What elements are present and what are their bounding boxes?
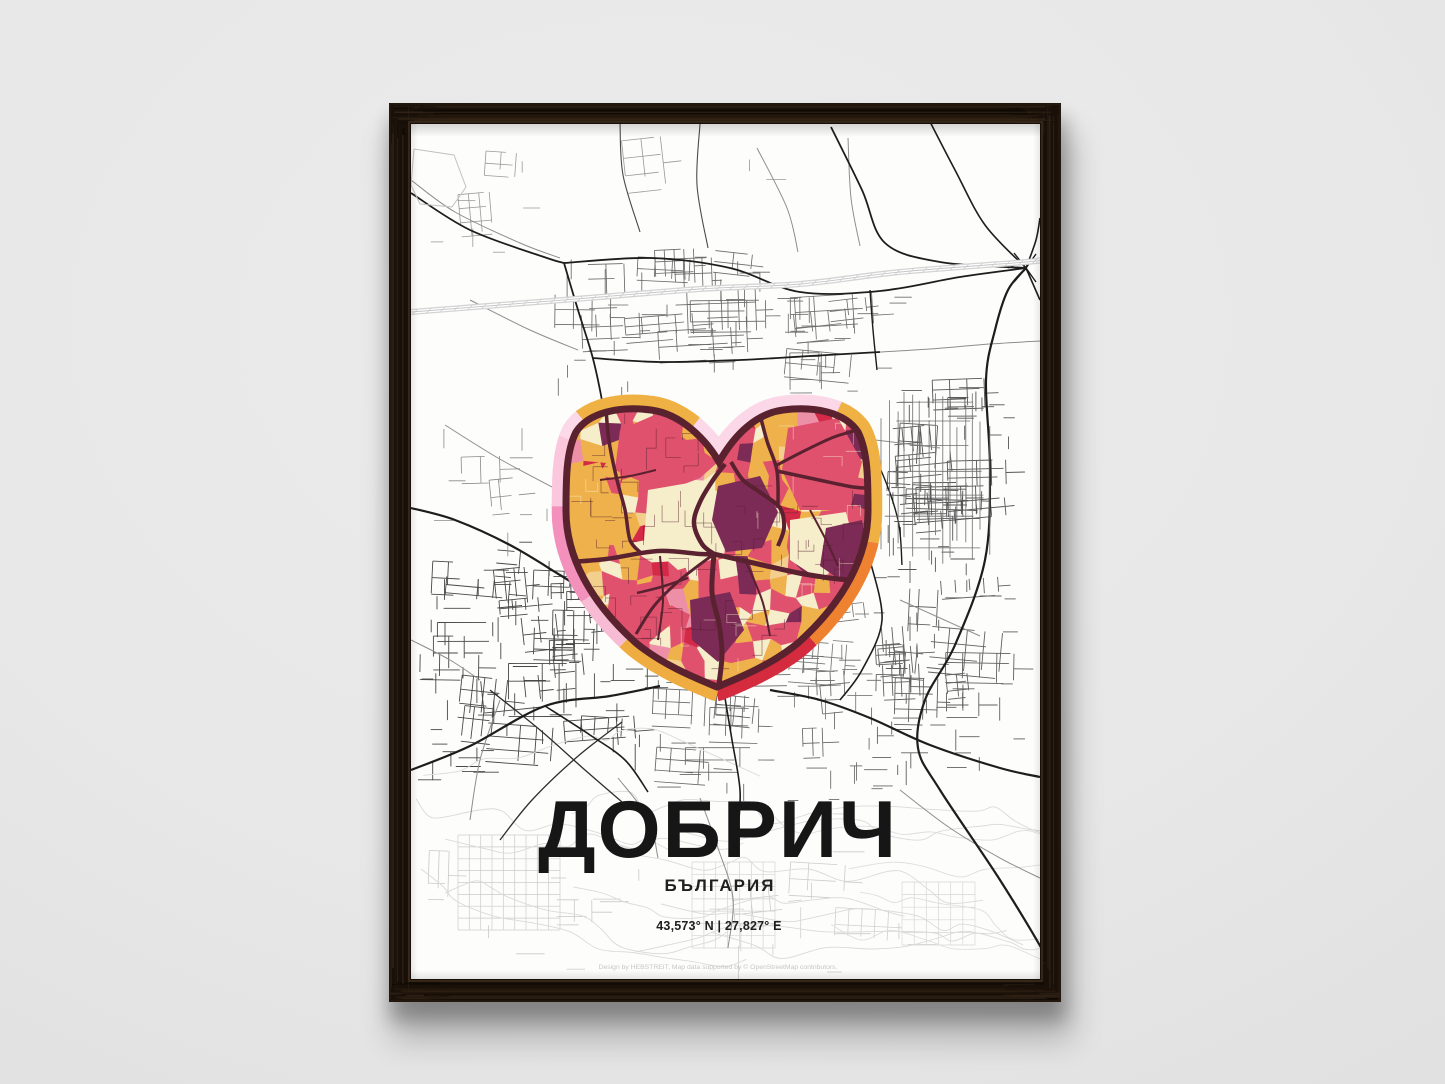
svg-text:Design by HEBSTREIT, Map data: Design by HEBSTREIT, Map data supported …: [599, 963, 838, 971]
svg-text:БЪЛГАРИЯ: БЪЛГАРИЯ: [665, 876, 776, 895]
svg-text:ДОБРИЧ: ДОБРИЧ: [538, 785, 898, 875]
svg-text:43,573° N | 27,827° E: 43,573° N | 27,827° E: [656, 919, 781, 933]
